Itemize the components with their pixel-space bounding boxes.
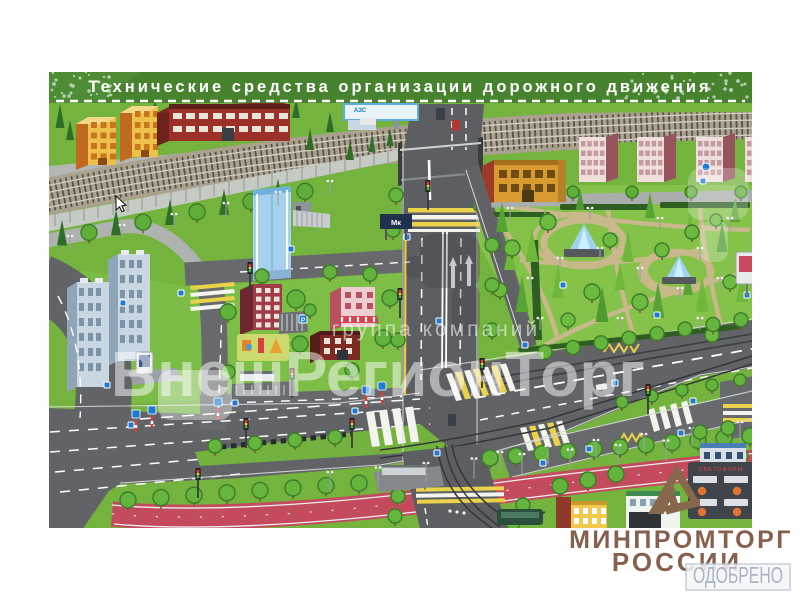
svg-text:АЗС: АЗС [354,108,367,114]
svg-text:ОДОБРЕНО: ОДОБРЕНО [693,562,783,588]
svg-text:P: P [301,317,306,324]
svg-text:ВнешРегионТорг: ВнешРегионТорг [111,338,645,410]
svg-text:Технические средства организац: Технические средства организации дорожно… [88,78,711,96]
svg-text:Мк: Мк [391,218,401,227]
svg-text:СВЕТОФОРЫ: СВЕТОФОРЫ [699,467,744,473]
